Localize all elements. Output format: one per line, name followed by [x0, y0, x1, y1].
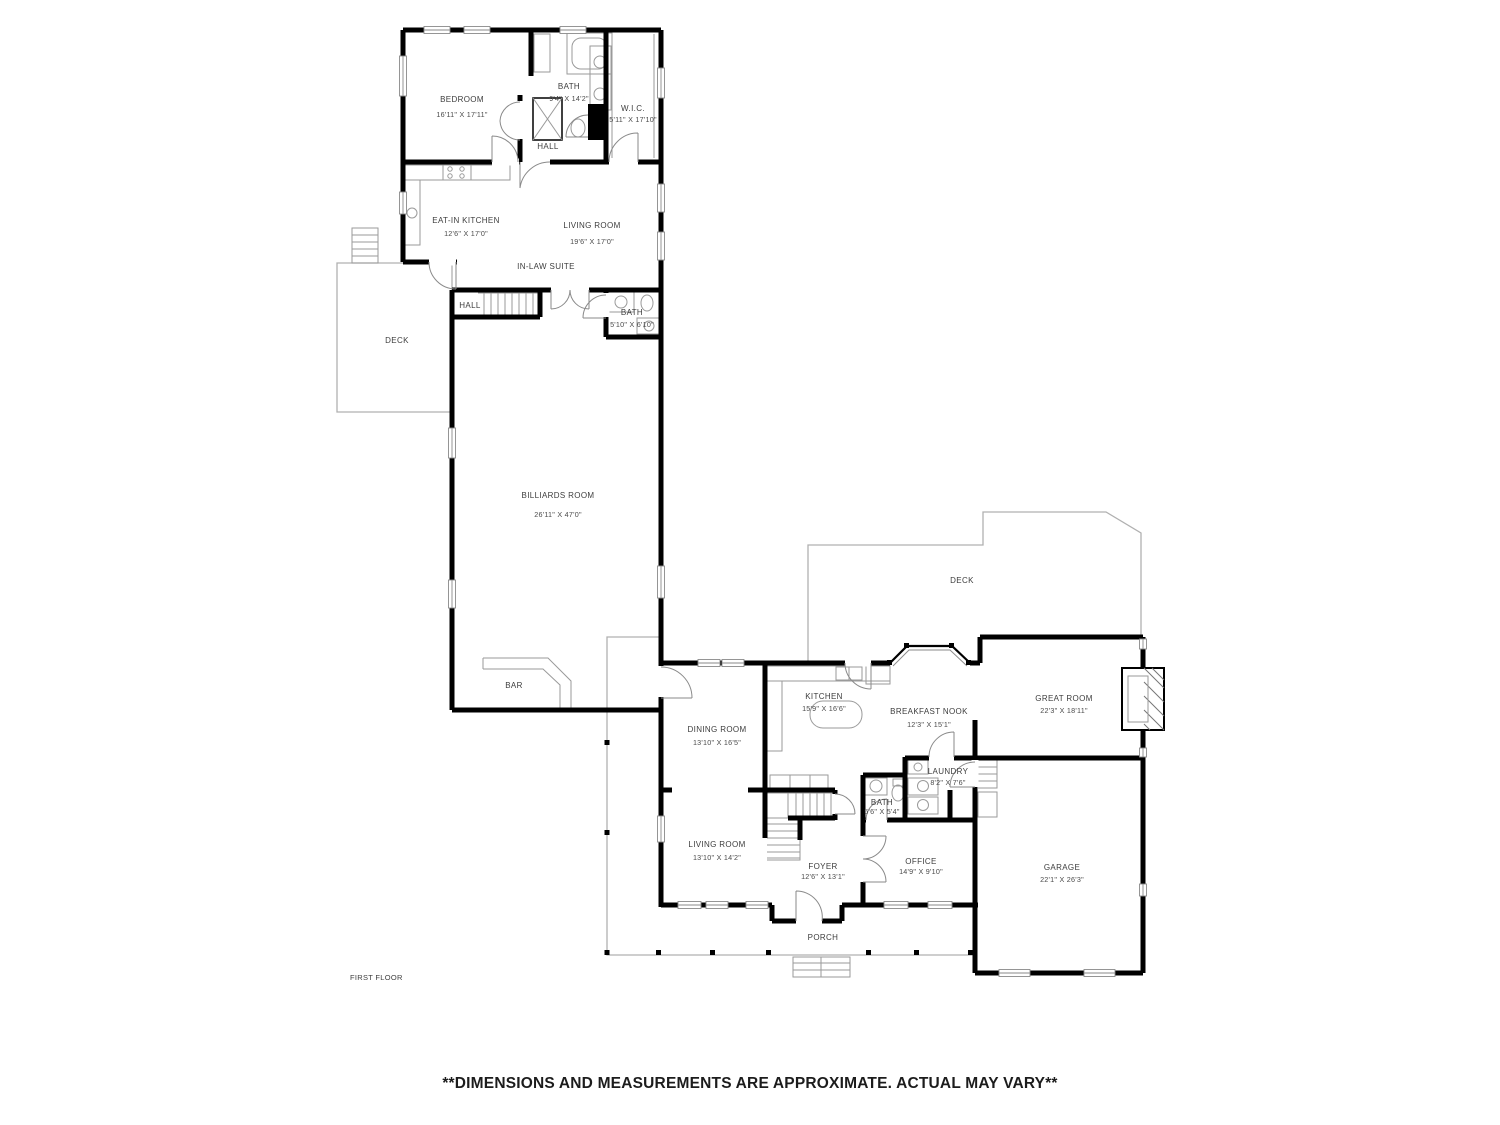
label-living-room-inlaw: LIVING ROOM	[563, 221, 620, 230]
dims-bath-half: 5'6" X 5'4"	[864, 807, 900, 816]
door-openings	[429, 101, 979, 882]
dims-great-room: 22'3" X 18'11"	[1040, 706, 1088, 715]
floor-title: FIRST FLOOR	[350, 973, 403, 982]
label-bedroom: BEDROOM	[440, 95, 484, 104]
label-wic: W.I.C.	[621, 104, 645, 113]
dims-dining-room: 13'10" X 16'5"	[693, 738, 741, 747]
label-deck-right: DECK	[950, 576, 974, 585]
label-breakfast-nook: BREAKFAST NOOK	[890, 707, 968, 716]
dims-eat-in-kitchen: 12'6" X 17'0"	[444, 229, 488, 238]
label-in-law-suite: IN-LAW SUITE	[517, 262, 575, 271]
label-porch: PORCH	[808, 933, 839, 942]
label-great-room: GREAT ROOM	[1035, 694, 1092, 703]
label-bar: BAR	[505, 681, 523, 690]
label-living-room: LIVING ROOM	[688, 840, 745, 849]
floor-plan-drawing: BEDROOM 16'11" X 17'11" BATH 9'4" X 14'2…	[0, 0, 1500, 1125]
label-deck-left: DECK	[385, 336, 409, 345]
label-bath-inlaw: BATH	[621, 308, 643, 317]
dims-office: 14'9" X 9'10"	[899, 867, 943, 876]
dims-bath-top: 9'4" X 14'2"	[549, 94, 589, 103]
bay-window	[887, 643, 971, 666]
fixtures	[405, 33, 938, 814]
label-hall-mid: HALL	[459, 301, 481, 310]
fireplace	[1122, 668, 1164, 730]
dims-bedroom: 16'11" X 17'11"	[436, 110, 487, 119]
deck-porch-outlines	[337, 263, 1141, 955]
dims-living-room: 13'10" X 14'2"	[693, 853, 741, 862]
label-bath-top: BATH	[558, 82, 580, 91]
dims-foyer: 12'6" X 13'1"	[801, 872, 845, 881]
label-bath-half: BATH	[871, 798, 893, 807]
disclaimer-text: **DIMENSIONS AND MEASUREMENTS ARE APPROX…	[442, 1075, 1058, 1092]
label-eat-in-kitchen: EAT-IN KITCHEN	[432, 216, 499, 225]
dims-laundry: 8'2" X 7'6"	[930, 778, 966, 787]
dims-living-room-inlaw: 19'6" X 17'0"	[570, 237, 614, 246]
label-foyer: FOYER	[808, 862, 837, 871]
label-dining-room: DINING ROOM	[688, 725, 747, 734]
dims-bath-inlaw: 5'10" X 6'10"	[610, 320, 654, 329]
label-garage: GARAGE	[1044, 863, 1080, 872]
windows	[400, 27, 1147, 977]
dims-breakfast-nook: 12'3" X 15'1"	[907, 720, 951, 729]
label-office: OFFICE	[905, 857, 936, 866]
dims-garage: 22'1" X 26'3"	[1040, 875, 1084, 884]
label-billiards: BILLIARDS ROOM	[522, 491, 595, 500]
dims-kitchen: 15'9" X 16'6"	[802, 704, 846, 713]
label-kitchen: KITCHEN	[805, 692, 843, 701]
floor-plan-page: BEDROOM 16'11" X 17'11" BATH 9'4" X 14'2…	[0, 0, 1500, 1125]
dims-billiards: 26'11" X 47'0"	[534, 510, 582, 519]
label-laundry: LAUNDRY	[928, 767, 969, 776]
walls	[403, 30, 1143, 973]
label-hall-top: HALL	[537, 142, 559, 151]
dims-wic: 5'11" X 17'10"	[609, 115, 657, 124]
